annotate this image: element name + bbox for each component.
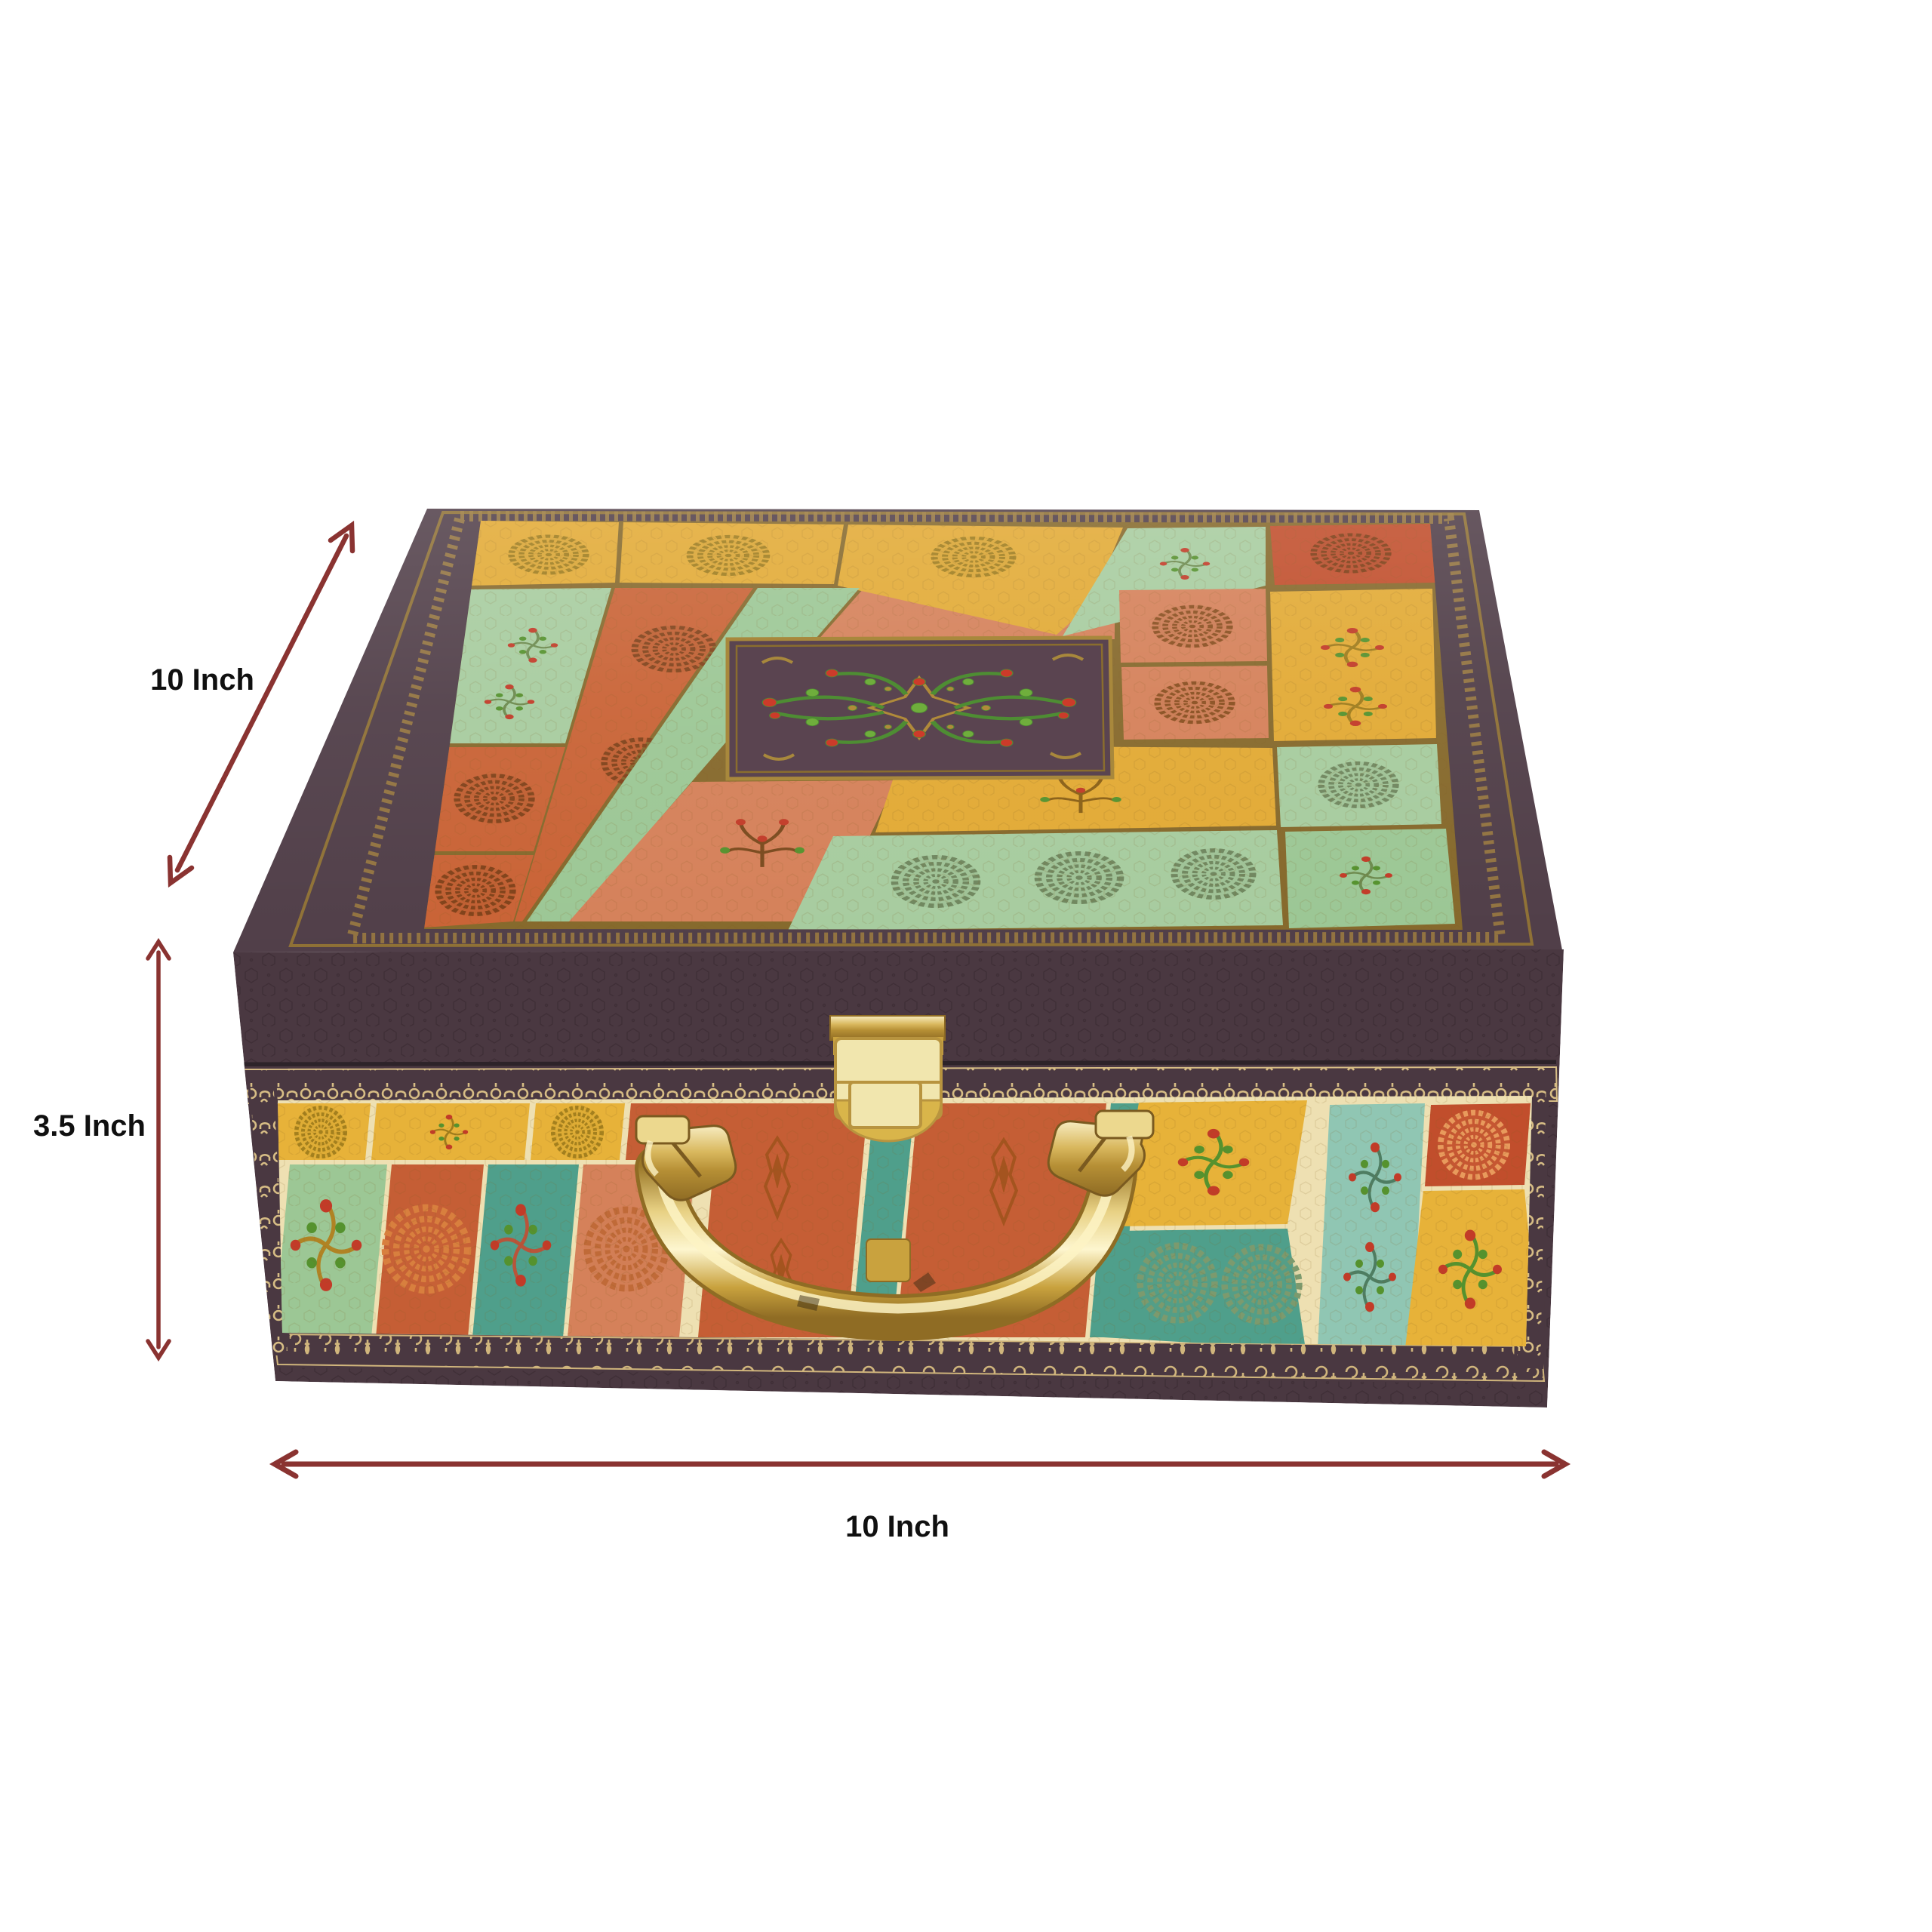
svg-text:3.5 Inch: 3.5 Inch bbox=[33, 1109, 146, 1143]
svg-text:10 Inch: 10 Inch bbox=[845, 1510, 949, 1543]
svg-text:10 Inch: 10 Inch bbox=[150, 663, 254, 697]
